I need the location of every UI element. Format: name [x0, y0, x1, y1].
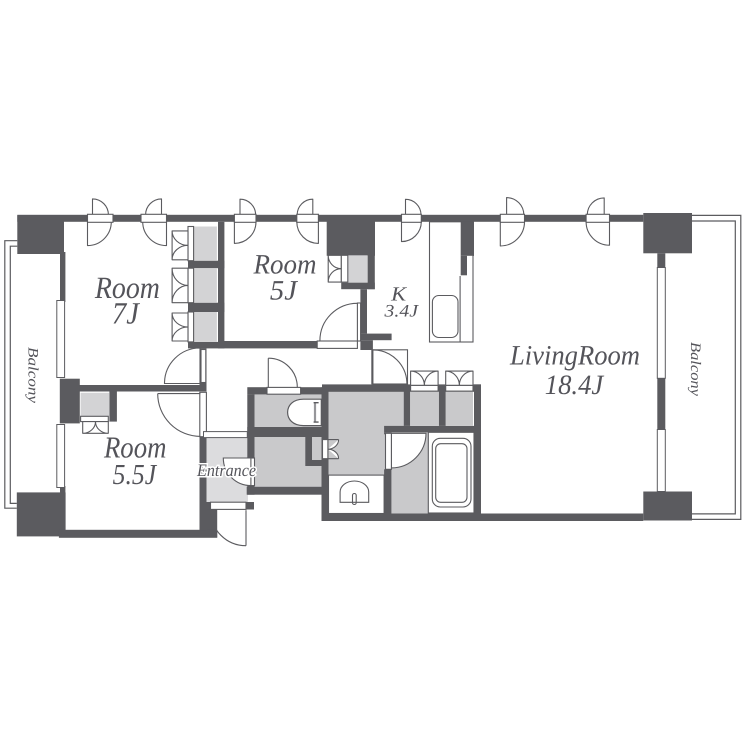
svg-text:5J: 5J	[270, 276, 299, 307]
svg-text:LivingRoom: LivingRoom	[509, 341, 640, 372]
svg-text:Balcony: Balcony	[25, 347, 41, 404]
svg-text:3.4J: 3.4J	[383, 301, 419, 321]
svg-text:5.5J: 5.5J	[113, 459, 157, 491]
svg-text:Balcony: Balcony	[687, 342, 703, 397]
svg-text:Entrance: Entrance	[196, 460, 256, 480]
svg-text:18.4J: 18.4J	[545, 370, 605, 401]
svg-text:7J: 7J	[112, 296, 140, 331]
